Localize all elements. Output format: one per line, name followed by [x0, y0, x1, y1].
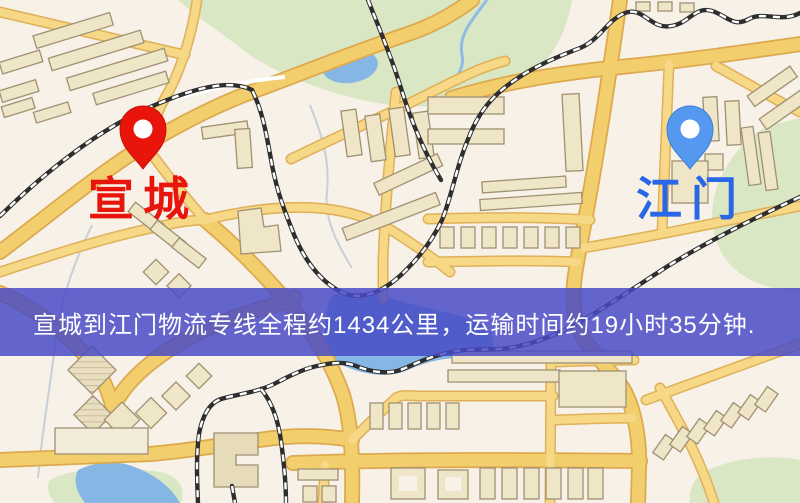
logistics-route-map: 宣城 江门 宣城到江门物流专线全程约1434公里，运输时间约19小时35分钟. — [0, 0, 800, 503]
route-info-banner: 宣城到江门物流专线全程约1434公里，运输时间约19小时35分钟. — [0, 288, 800, 356]
destination-city-label: 江门 — [636, 176, 746, 222]
route-info-text: 宣城到江门物流专线全程约1434公里，运输时间约19小时35分钟. — [0, 305, 755, 340]
origin-city-label: 宣城 — [88, 176, 198, 222]
map-canvas[interactable] — [0, 0, 800, 503]
